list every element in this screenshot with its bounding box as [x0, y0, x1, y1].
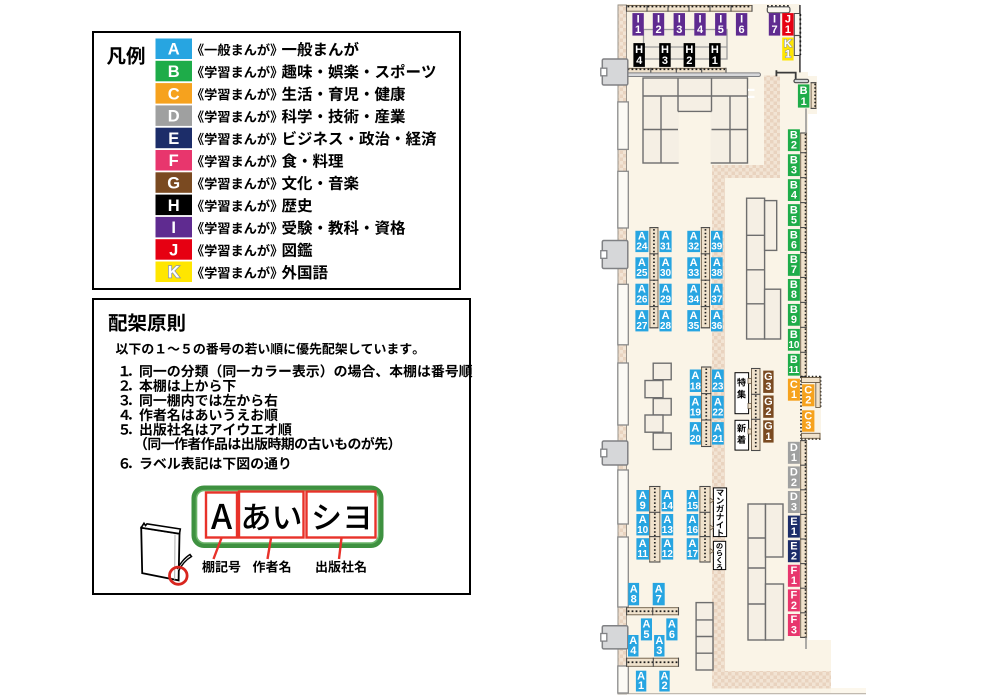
svg-text:14: 14 — [662, 501, 674, 512]
svg-text:6: 6 — [791, 239, 797, 251]
svg-text:9: 9 — [640, 500, 646, 512]
svg-text:7: 7 — [791, 264, 797, 276]
svg-text:22: 22 — [712, 408, 724, 419]
svg-text:4: 4 — [791, 189, 798, 201]
svg-text:6: 6 — [669, 629, 675, 641]
svg-text:1: 1 — [785, 24, 791, 36]
svg-text:3: 3 — [791, 501, 797, 513]
svg-text:2: 2 — [765, 406, 771, 418]
svg-text:28: 28 — [660, 321, 672, 332]
svg-text:30: 30 — [660, 268, 672, 279]
svg-text:2: 2 — [805, 395, 811, 407]
svg-text:A: A — [691, 370, 699, 382]
svg-text:A: A — [691, 423, 699, 435]
svg-text:6: 6 — [739, 24, 745, 36]
svg-text:33: 33 — [688, 268, 700, 279]
svg-text:39: 39 — [711, 242, 723, 253]
svg-text:1: 1 — [635, 24, 641, 36]
svg-text:2: 2 — [791, 477, 797, 489]
svg-text:12: 12 — [662, 549, 674, 560]
svg-text:A: A — [714, 423, 722, 435]
svg-text:A: A — [714, 370, 722, 382]
svg-text:4: 4 — [636, 55, 643, 67]
svg-text:10: 10 — [637, 525, 649, 536]
svg-text:3: 3 — [662, 55, 668, 67]
svg-text:25: 25 — [636, 268, 648, 279]
svg-text:2: 2 — [686, 55, 692, 67]
svg-text:35: 35 — [688, 321, 700, 332]
svg-text:A: A — [714, 396, 722, 408]
svg-text:1: 1 — [785, 49, 791, 61]
svg-text:1: 1 — [801, 96, 807, 108]
svg-text:2: 2 — [791, 139, 797, 151]
svg-text:11: 11 — [637, 549, 648, 560]
svg-text:32: 32 — [688, 242, 700, 253]
svg-text:2: 2 — [661, 680, 667, 692]
svg-text:A: A — [691, 396, 699, 408]
svg-text:4: 4 — [697, 24, 704, 36]
svg-text:1: 1 — [791, 575, 797, 587]
svg-text:23: 23 — [712, 381, 724, 392]
svg-text:15: 15 — [687, 501, 699, 512]
svg-text:18: 18 — [690, 381, 702, 392]
svg-text:1: 1 — [791, 452, 797, 464]
svg-text:1: 1 — [638, 680, 644, 692]
svg-text:29: 29 — [660, 294, 672, 305]
svg-text:38: 38 — [711, 268, 723, 279]
svg-text:3: 3 — [791, 164, 797, 176]
svg-text:19: 19 — [690, 408, 702, 419]
svg-text:4: 4 — [630, 645, 637, 657]
svg-text:9: 9 — [791, 314, 797, 326]
svg-text:1: 1 — [712, 55, 718, 67]
svg-text:24: 24 — [636, 242, 648, 253]
svg-text:34: 34 — [688, 294, 700, 305]
svg-text:7: 7 — [771, 24, 777, 36]
svg-text:31: 31 — [660, 242, 672, 253]
svg-text:3: 3 — [656, 645, 662, 657]
svg-text:5: 5 — [643, 629, 649, 641]
svg-text:26: 26 — [636, 294, 648, 305]
svg-text:3: 3 — [765, 381, 771, 393]
svg-text:36: 36 — [711, 321, 723, 332]
svg-text:11: 11 — [789, 365, 800, 376]
svg-text:3: 3 — [791, 624, 797, 636]
svg-text:21: 21 — [712, 434, 724, 445]
svg-text:1: 1 — [765, 431, 771, 443]
svg-text:5: 5 — [791, 214, 797, 226]
svg-text:3: 3 — [676, 24, 682, 36]
svg-text:27: 27 — [636, 321, 648, 332]
svg-text:5: 5 — [718, 24, 724, 36]
svg-text:2: 2 — [791, 551, 797, 563]
svg-text:3: 3 — [805, 420, 811, 432]
svg-text:8: 8 — [631, 594, 637, 606]
svg-text:1: 1 — [791, 389, 797, 401]
svg-text:1: 1 — [791, 526, 797, 538]
svg-text:10: 10 — [788, 340, 800, 351]
svg-text:16: 16 — [687, 525, 699, 536]
svg-text:13: 13 — [662, 525, 674, 536]
svg-text:2: 2 — [791, 600, 797, 612]
svg-text:20: 20 — [690, 434, 702, 445]
svg-text:37: 37 — [711, 294, 723, 305]
svg-text:7: 7 — [656, 594, 662, 606]
svg-text:17: 17 — [687, 549, 699, 560]
svg-text:8: 8 — [791, 289, 797, 301]
svg-text:2: 2 — [655, 24, 661, 36]
